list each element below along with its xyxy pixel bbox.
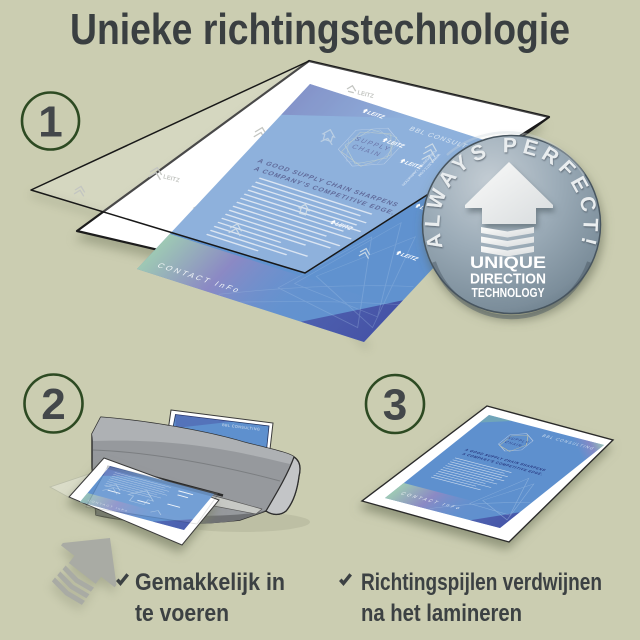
svg-text:na het lamineren: na het lamineren	[361, 600, 522, 627]
svg-text:TECHNOLOGY: TECHNOLOGY	[472, 285, 545, 300]
svg-text:Richtingspijlen verdwijnen: Richtingspijlen verdwijnen	[361, 569, 602, 596]
svg-text:UNIQUE: UNIQUE	[470, 253, 546, 272]
svg-text:3: 3	[383, 381, 407, 430]
svg-text:2: 2	[41, 380, 65, 429]
svg-text:te voeren: te voeren	[135, 600, 229, 627]
svg-text:1: 1	[38, 98, 62, 147]
svg-text:Unieke richtingstechnologie: Unieke richtingstechnologie	[70, 5, 570, 54]
svg-text:Gemakkelijk in: Gemakkelijk in	[135, 569, 285, 596]
